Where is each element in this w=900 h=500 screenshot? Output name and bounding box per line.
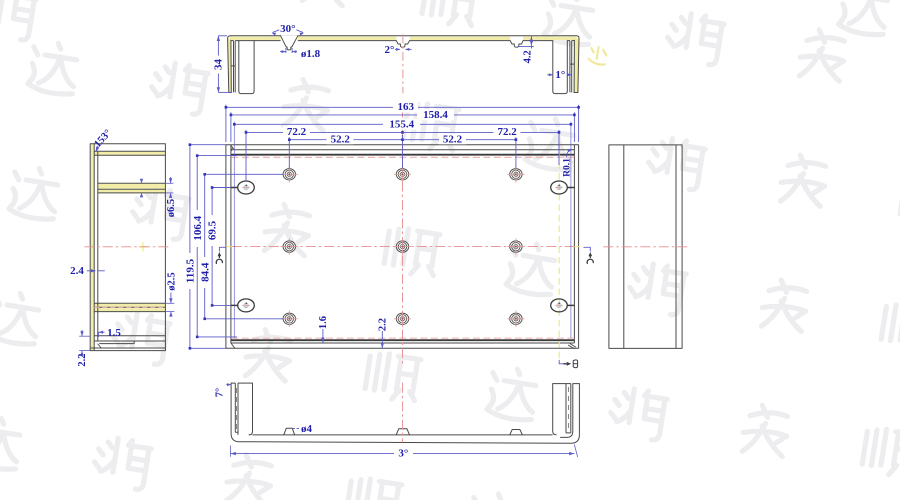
svg-text:4.2: 4.2 [522,50,533,63]
svg-text:ø1.8: ø1.8 [301,48,321,60]
svg-text:3°: 3° [398,447,408,459]
svg-text:ø6.5: ø6.5 [166,199,177,217]
svg-text:1.6: 1.6 [318,316,329,329]
svg-text:84.4: 84.4 [199,262,211,282]
svg-text:30°: 30° [280,23,295,35]
svg-text:7°: 7° [214,388,225,397]
svg-text:158.4: 158.4 [423,109,448,121]
svg-text:163: 163 [398,101,415,113]
svg-text:ø4: ø4 [301,423,313,435]
svg-text:106.4: 106.4 [192,215,204,240]
svg-text:69.5: 69.5 [207,220,219,240]
svg-text:52.2: 52.2 [331,133,351,145]
svg-text:1°: 1° [555,69,565,81]
svg-text:2.2: 2.2 [378,318,389,331]
svg-text:52.2: 52.2 [443,133,463,145]
svg-text:72.2: 72.2 [497,126,517,138]
svg-text:2.4: 2.4 [70,265,84,277]
svg-text:72.2: 72.2 [287,126,307,138]
svg-text:119.5: 119.5 [184,258,196,283]
svg-text:155.4: 155.4 [389,118,414,130]
svg-text:R0.1: R0.1 [562,158,572,177]
svg-text:ø2.5: ø2.5 [166,272,177,290]
svg-text:2.2: 2.2 [77,353,88,366]
svg-text:2°: 2° [385,44,395,56]
svg-text:34: 34 [212,59,224,71]
svg-text:1.5: 1.5 [107,327,121,339]
